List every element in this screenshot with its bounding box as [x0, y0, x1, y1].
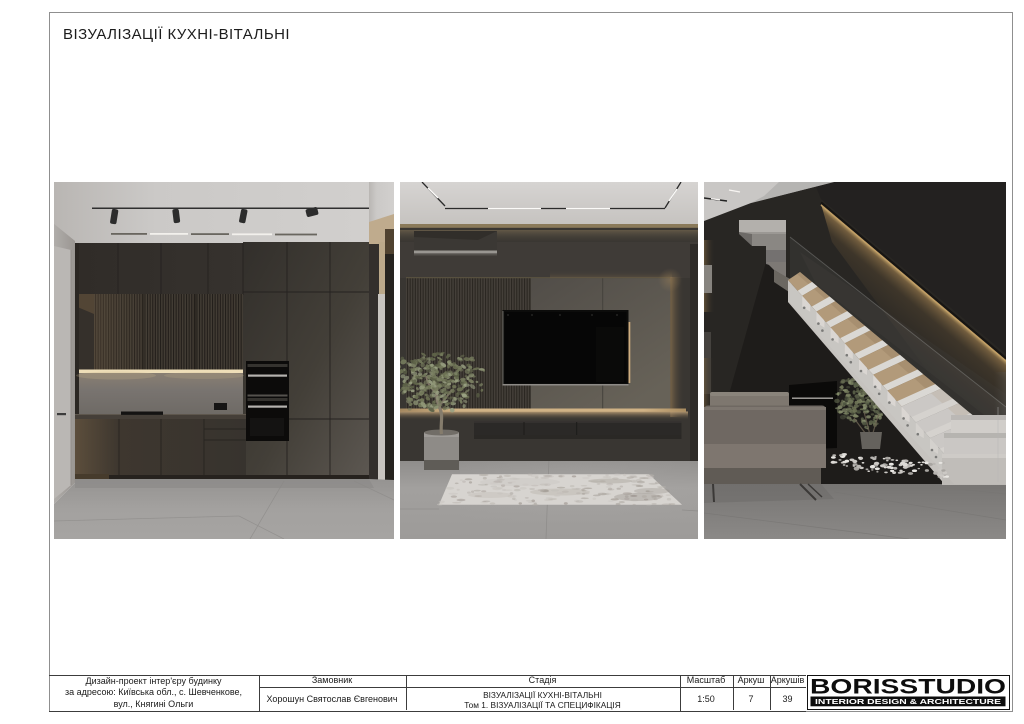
- svg-text:INTERIOR DESIGN & ARCHITECTURE: INTERIOR DESIGN & ARCHITECTURE: [815, 697, 1001, 706]
- svg-text:BORISSTUDIO: BORISSTUDIO: [810, 676, 1006, 699]
